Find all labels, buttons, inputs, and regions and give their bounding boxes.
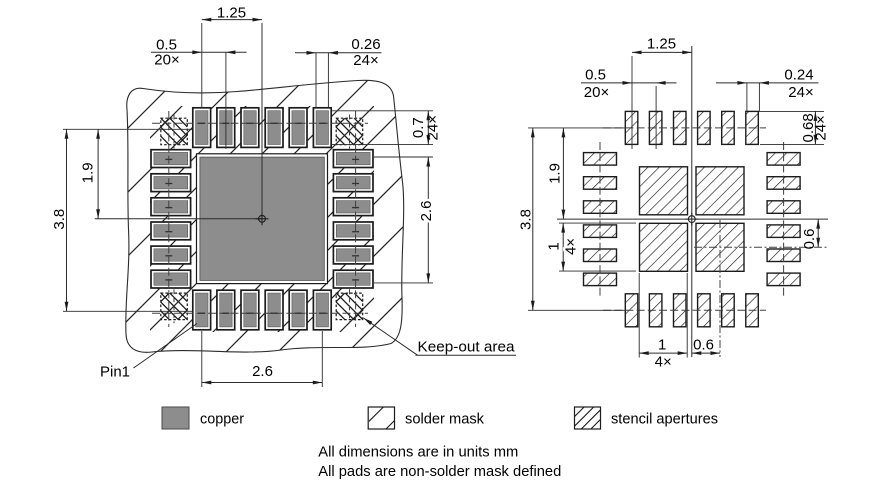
svg-text:0.6: 0.6 [801, 229, 818, 250]
svg-text:4×: 4× [562, 238, 579, 255]
svg-text:Keep-out area: Keep-out area [418, 338, 516, 355]
svg-text:0.5: 0.5 [585, 67, 606, 84]
svg-text:1: 1 [546, 242, 563, 250]
svg-text:4×: 4× [655, 353, 672, 370]
svg-text:20×: 20× [154, 52, 179, 69]
svg-text:1.9: 1.9 [547, 163, 564, 184]
svg-text:24×: 24× [353, 52, 378, 69]
svg-text:All dimensions are in units mm: All dimensions are in units mm [318, 443, 518, 460]
svg-text:copper: copper [200, 410, 244, 427]
svg-text:1.25: 1.25 [647, 36, 676, 53]
svg-text:3.8: 3.8 [518, 209, 535, 230]
svg-text:stencil apertures: stencil apertures [611, 410, 718, 427]
svg-text:24×: 24× [788, 84, 813, 101]
svg-text:1.25: 1.25 [217, 5, 246, 22]
svg-text:All pads are non-solder mask d: All pads are non-solder mask defined [318, 463, 561, 480]
svg-text:3.8: 3.8 [51, 209, 68, 230]
svg-text:0.6: 0.6 [693, 336, 714, 353]
svg-text:0.26: 0.26 [351, 36, 380, 53]
svg-text:24×: 24× [813, 115, 830, 140]
svg-text:0.24: 0.24 [784, 67, 813, 84]
svg-text:2.6: 2.6 [252, 363, 273, 380]
svg-text:Pin1: Pin1 [100, 363, 130, 380]
svg-text:solder mask: solder mask [405, 410, 484, 427]
svg-text:24×: 24× [424, 115, 441, 140]
svg-text:1.9: 1.9 [80, 162, 97, 183]
svg-text:1: 1 [658, 336, 666, 353]
svg-text:2.6: 2.6 [418, 201, 435, 222]
svg-text:20×: 20× [584, 84, 609, 101]
